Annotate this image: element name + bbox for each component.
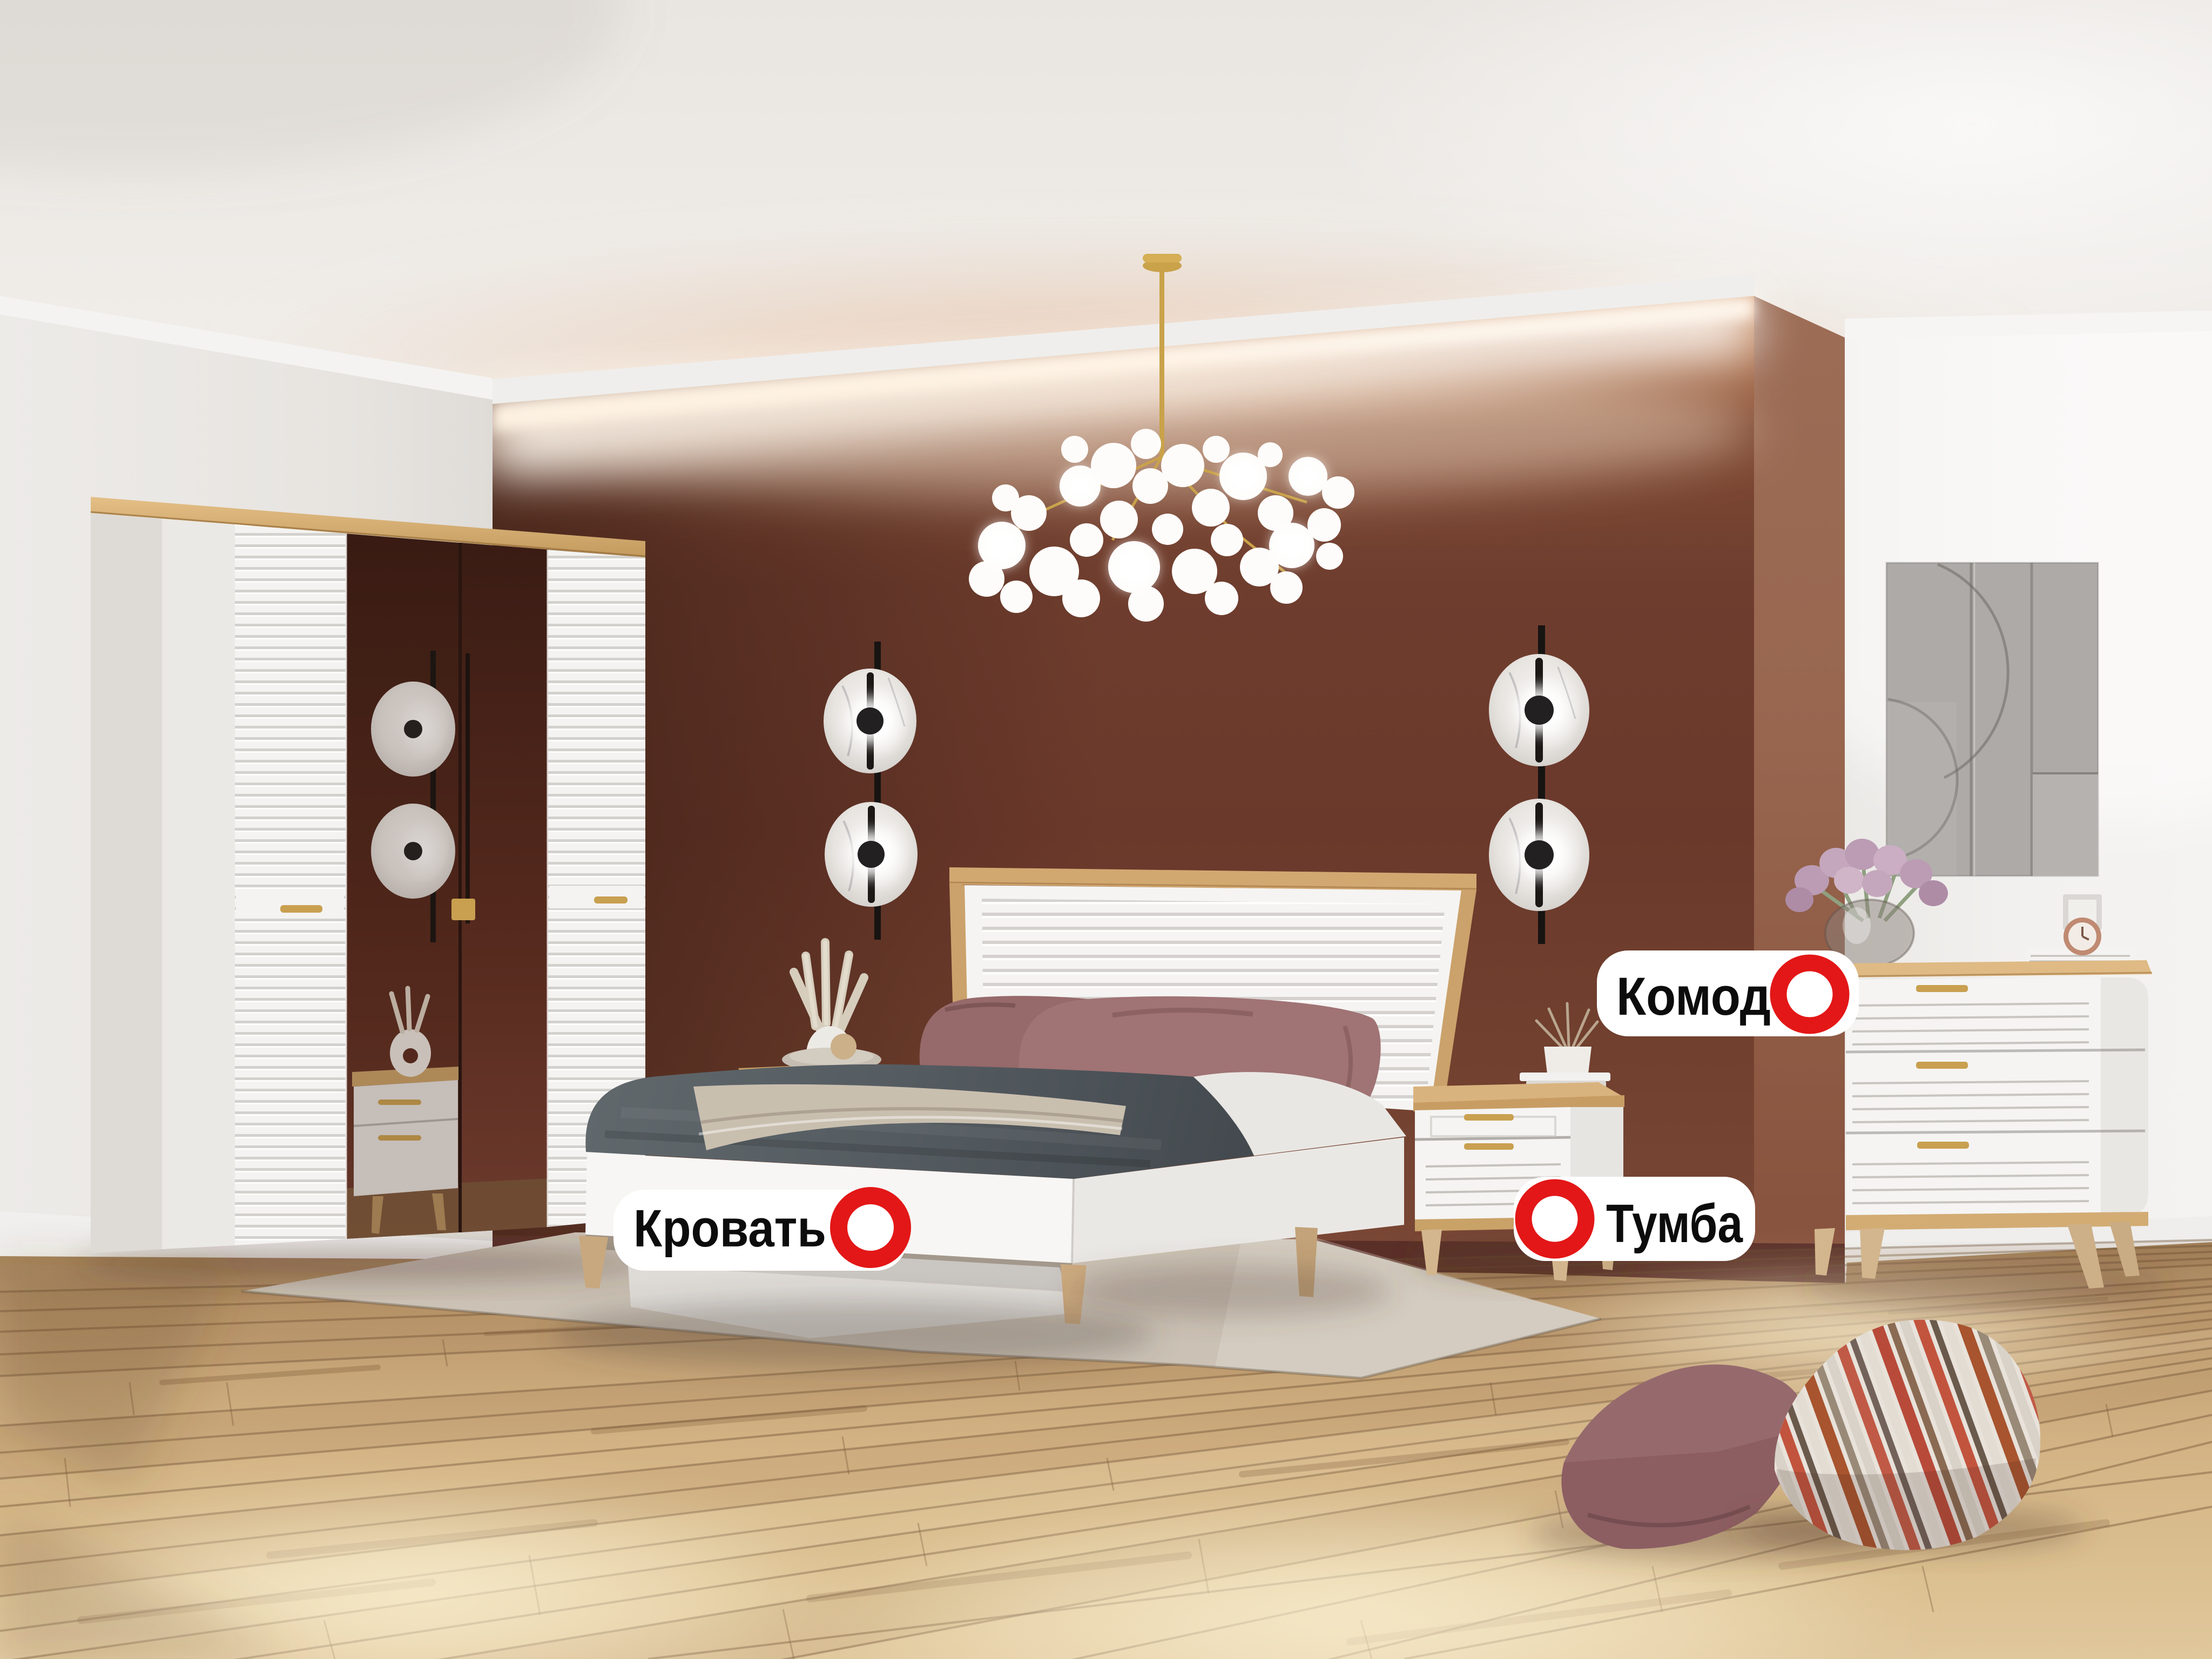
- svg-text:Комод: Комод: [1616, 966, 1771, 1026]
- svg-text:Кровать: Кровать: [633, 1199, 826, 1258]
- svg-text:Тумба: Тумба: [1606, 1193, 1743, 1254]
